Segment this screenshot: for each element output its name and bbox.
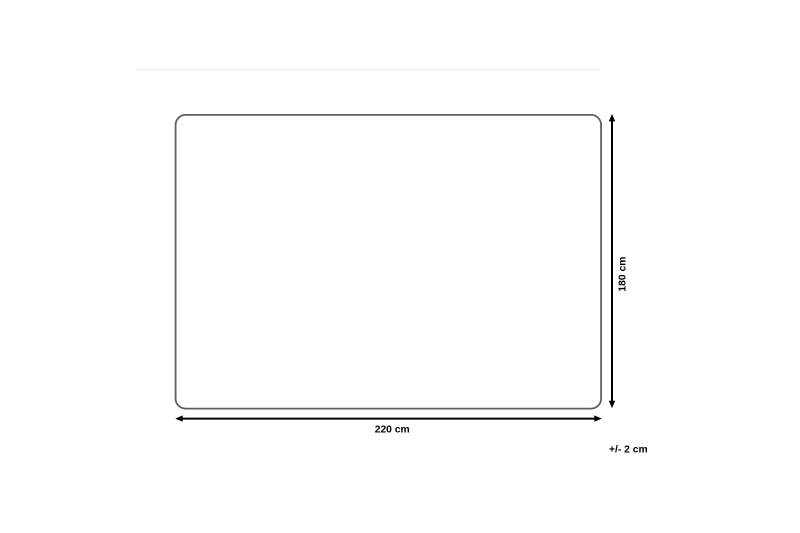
svg-text:180 cm: 180 cm: [617, 257, 628, 292]
svg-text:+/- 2 cm: +/- 2 cm: [609, 444, 648, 455]
svg-text:220 cm: 220 cm: [375, 425, 410, 436]
